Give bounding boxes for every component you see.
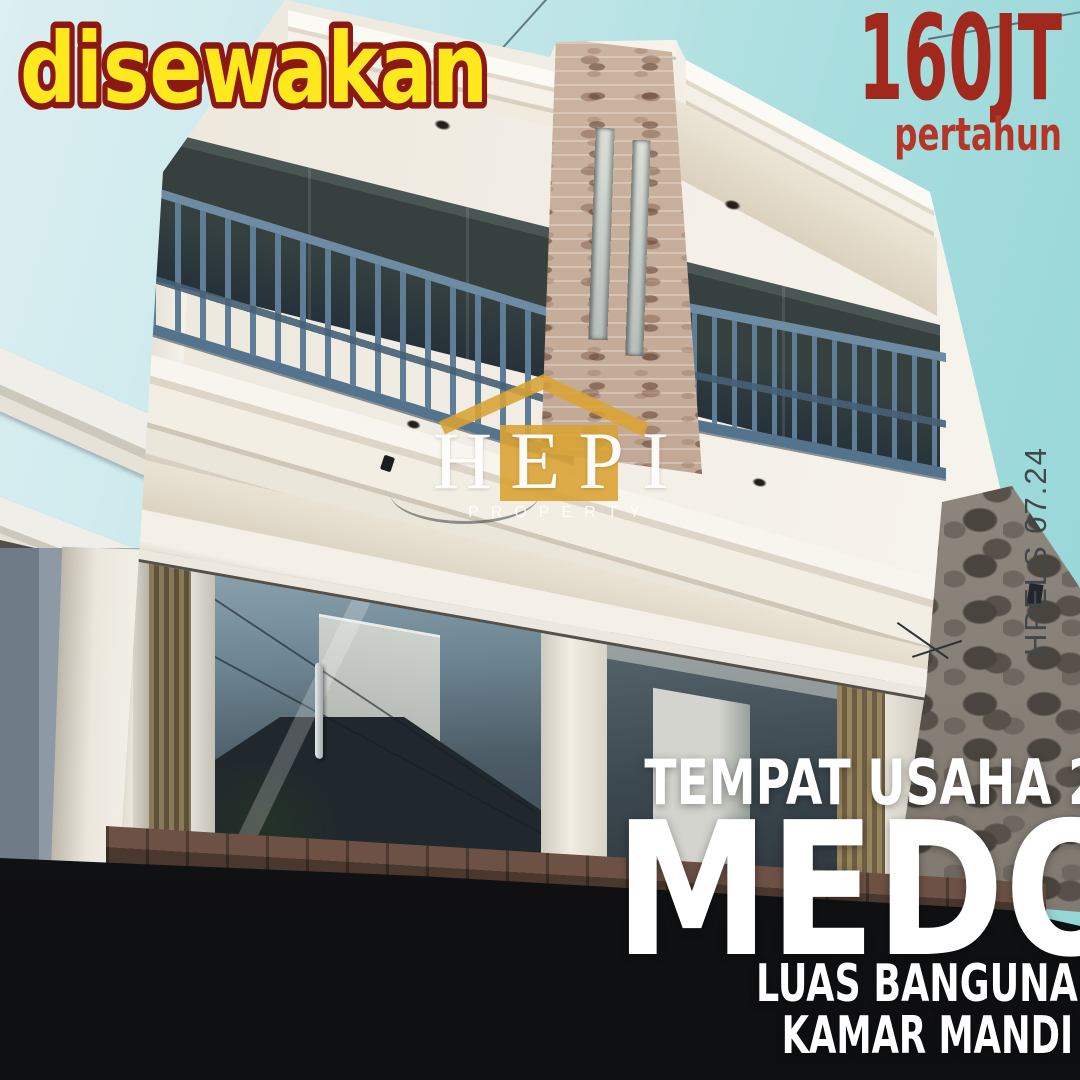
watermark-brand-sub: PROPERTY (400, 504, 720, 522)
spec-line-1-text: LUAS BANGUNAN 220M² (8,5M x 13M x 2 LANT… (756, 958, 1080, 1010)
badge-text: disewakan (20, 12, 488, 125)
price-amount: 160JT (842, 4, 1062, 113)
watermark-brand: HEPI (400, 420, 720, 502)
photo-code: HPELS 07.24 (1018, 426, 1066, 656)
door-handle (315, 662, 323, 759)
glass-frame-left (191, 558, 215, 867)
property-ad-flyer: HEPI PROPERTY disewakan 160JT pertahun H… (0, 0, 1080, 1080)
accordion-door-left (149, 551, 191, 863)
hepi-watermark: HEPI PROPERTY (400, 372, 720, 532)
downlight (751, 477, 768, 489)
price-period: pertahun (774, 112, 1062, 157)
badge-disewakan: disewakan (6, 2, 526, 127)
spec-line-2-text: KAMAR MANDI 2 | LISTRIK 14.000 WATT | AC… (782, 1010, 1080, 1062)
